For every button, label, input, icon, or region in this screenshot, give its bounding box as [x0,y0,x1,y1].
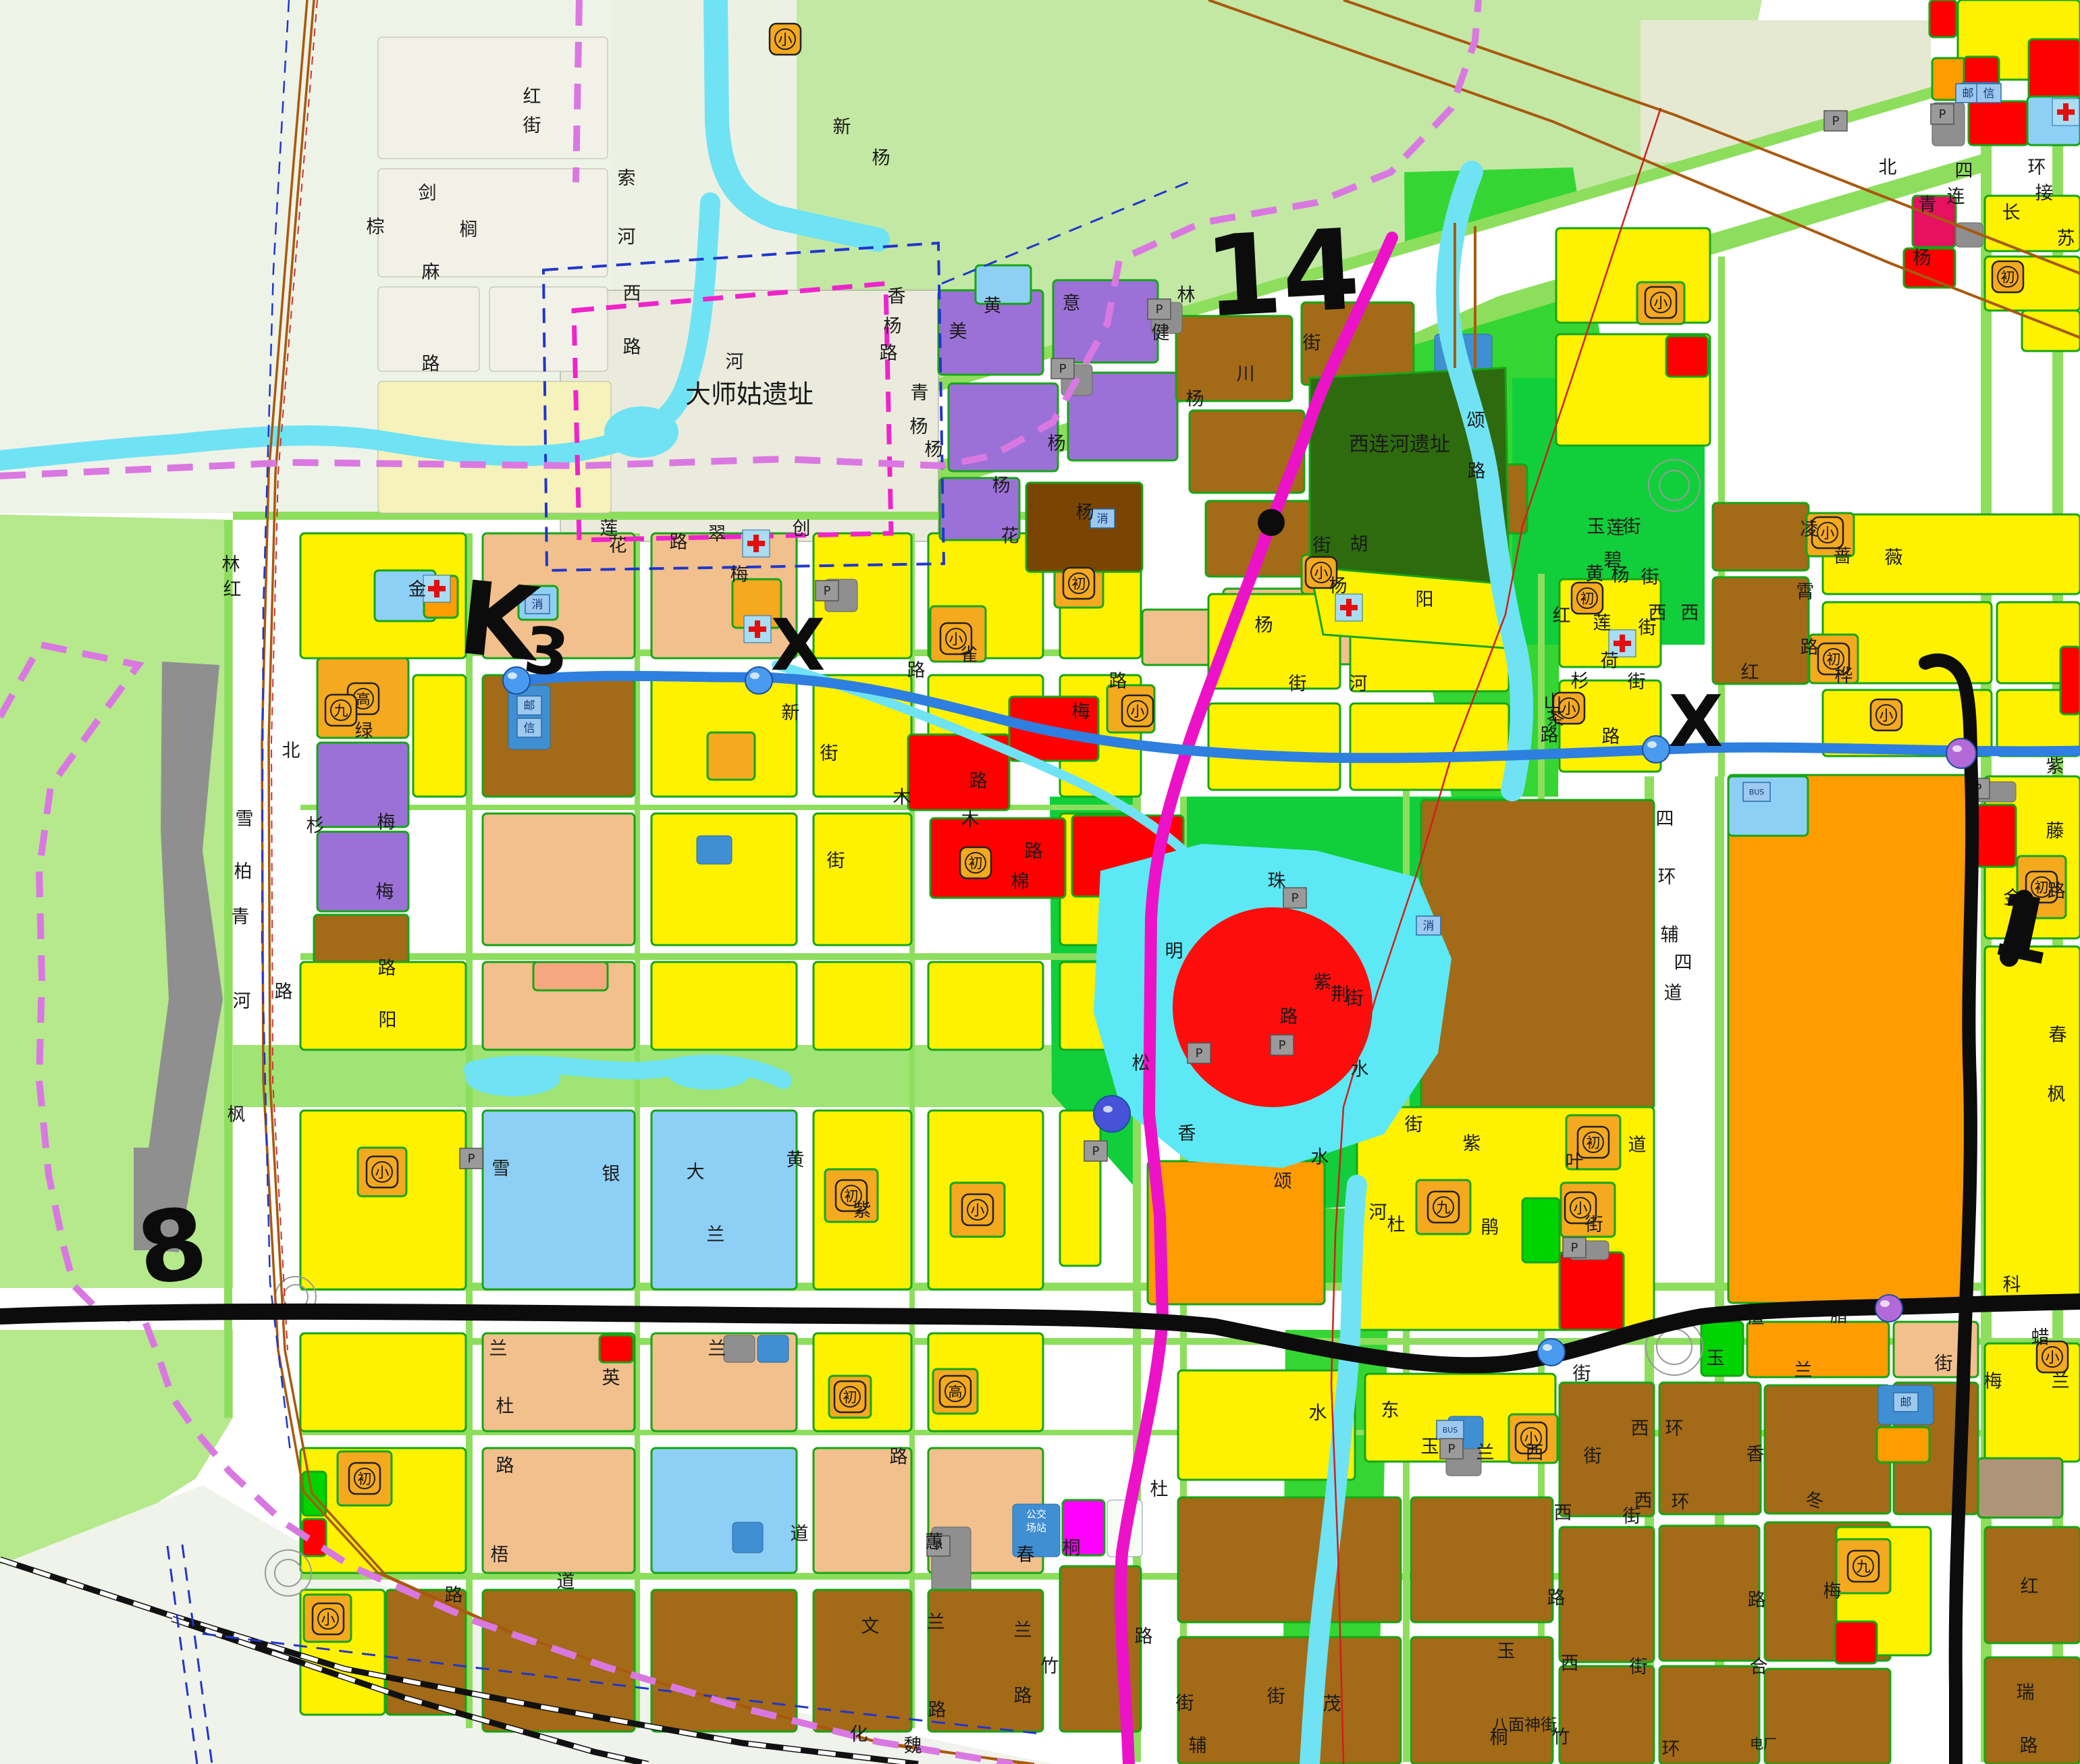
parcel [489,287,608,371]
street-label: 道 [1664,983,1682,1004]
street-label: 河 [1350,674,1368,695]
parking-icon-char: P [1832,114,1840,128]
street-label: 兰 [708,1339,726,1360]
street-label: 环 [1658,867,1676,888]
street-label: 东 [1381,1400,1399,1421]
parcel [928,962,1043,1050]
street-label: 西 [1526,1443,1544,1464]
street-label: 街 [1585,1214,1603,1235]
parcel [483,1111,635,1289]
street-label: 四 [1656,809,1674,830]
street-label: 街 [1641,567,1659,588]
xin-icon-char: 信 [524,722,535,735]
green-strip [300,953,1141,960]
street-label: 杨 [925,439,943,460]
street-label: 藤 [2046,821,2064,842]
street-label: 北 [1879,157,1897,178]
street-label: 明 [1165,941,1183,962]
parcel [651,1448,797,1573]
parcel [732,1522,763,1553]
parcel [508,685,550,749]
parcel [1713,577,1809,684]
street-label: 香 [1178,1123,1196,1144]
street-label: 兰 [1476,1443,1495,1464]
street-label: 辅 [1661,925,1679,946]
hand-marker-label: 3 [521,613,572,691]
street-label: 竹 [1041,1656,1059,1677]
street-label: 绿 [355,721,373,742]
street-label: 四 [1955,161,1973,182]
parcel [413,675,466,797]
street-label: 颂 [1274,1171,1292,1192]
parcel [1765,1385,1890,1514]
fire-icon-char: 消 [1423,919,1435,933]
parcel [2060,647,2080,714]
parcel [1969,101,2028,145]
parcel [300,1333,466,1431]
school-icon-char: 高 [949,1384,963,1400]
hospital-cross [434,580,439,597]
street-label: 街 [827,851,845,872]
street-label: 杨 [1329,576,1348,597]
street-label: 路 [907,660,926,681]
parcel [1411,1637,1553,1764]
street-label: 玉 [1587,516,1605,537]
parcel [1977,805,2016,867]
parcel [1747,1322,1889,1377]
transit-bead-highlight [1647,741,1657,748]
street-label: 杨 [1186,389,1204,410]
street-label: 杨 [992,475,1011,496]
street-label: 北 [282,741,300,761]
street-label: 环 [1662,1739,1680,1760]
street-label: 杜 [1387,1214,1406,1235]
street-label: 柏 [234,861,252,882]
street-label: 春 [2049,1025,2067,1046]
street-label: 莲 [1607,518,1625,539]
parcel [599,1335,633,1362]
street-label: 街 [1623,516,1641,537]
street-label: 凌 [1801,519,1819,540]
street-label: 路 [378,958,396,979]
street-label: 金 [408,579,427,600]
parcel [757,1335,789,1362]
street-label: 路 [422,354,440,375]
street-label: 木 [893,787,911,808]
school-icon-char: 小 [1821,525,1835,541]
street-label: 瑞 [2017,1682,2035,1703]
street-label: 公交 [1026,1508,1046,1520]
street-label: 兰 [927,1612,945,1633]
street-label: 梅 [730,564,749,585]
parcel [930,818,1065,898]
parcel [300,1111,466,1289]
street-label: 道 [791,1524,809,1545]
transit-bead-highlight [1103,1106,1113,1113]
street-label: 西 [1681,603,1699,624]
hospital-cross [755,620,760,638]
street-label: 杨 [884,316,902,337]
street-label: 梅 [376,882,394,903]
street-label: 香 [1746,1444,1765,1465]
street-label: 路 [1280,1007,1298,1027]
street-label: 街 [1584,1446,1602,1467]
street-label: 街 [1628,672,1646,693]
street-label: 四 [1674,953,1692,973]
street-label: 兰 [1014,1620,1032,1641]
transit-bead [1946,739,1976,768]
parcel [1026,483,1142,572]
school-icon-char: 初 [358,1471,372,1487]
street-label: 路 [670,532,688,553]
street-label: 路 [445,1585,463,1606]
street-label: 路 [880,343,898,364]
stadium-red-circle [1173,907,1372,1107]
street-label: 创 [793,518,811,539]
school-icon-char: 九 [334,703,348,719]
transit-bead [1538,1339,1565,1366]
street-label: 榈 [460,219,478,240]
street-label: 杨 [1255,615,1273,636]
street-label: 梅 [1984,1371,2002,1392]
parking-icon-char: P [1196,1046,1203,1061]
parcel [1208,703,1340,790]
parking-icon-char: P [1939,107,1946,122]
street-label: 雪 [236,809,254,830]
street-label: 意 [1063,293,1081,314]
street-label: 街 [1630,1657,1648,1678]
green-strip [300,805,1141,810]
street-label: 街 [1573,1364,1591,1385]
street-label: 路 [1801,637,1819,658]
school-icon-char: 初 [1072,576,1086,592]
parking-icon-char: P [1156,302,1163,317]
planning-map: 小小小小小小小小小小小小小小初初初初初初初初初初高高九九九消消消邮邮邮信信BUS… [0,0,2080,1764]
street-label: 花 [1001,526,1019,547]
parking-icon-char: P [1448,1442,1456,1456]
street-label: 街 [1405,1115,1423,1135]
parcel [1666,336,1708,377]
parking-icon-char: P [1059,362,1067,376]
street-label: 莲 [1593,613,1611,634]
street-label: 青 [1919,194,1937,215]
street-label: 蜡 [2031,1327,2050,1348]
street-label: 红 [523,86,541,107]
street-label: 道 [557,1572,575,1593]
street-label: 紫 [1463,1133,1481,1154]
street-label: 荷 [1601,651,1619,672]
street-label: 黄 [786,1150,805,1171]
street-label: 西 [623,284,641,304]
hospital-cross [2063,103,2069,121]
street-label: 杜 [496,1396,514,1417]
street-label: 路 [275,982,293,1003]
street-label: 梅 [377,812,396,833]
parcel [1522,1198,1559,1262]
street-label: 霄 [1796,582,1815,603]
street-label: 路 [1602,726,1620,747]
street-label: 蕙 [926,1532,944,1553]
parcel [814,813,911,945]
street-label: 化 [850,1724,868,1745]
parking-icon-char: P [468,1152,475,1166]
parcel [1823,514,2080,594]
parking-icon-char: P [824,584,831,598]
street-label: 颂 [1467,410,1485,431]
street-label: 青 [232,907,250,928]
parking-icon-char: P [1291,891,1299,905]
parcel [651,1111,797,1289]
street-label: 路 [928,1700,946,1721]
school-icon-char: 小 [1131,703,1145,720]
street-label: 玉 [1707,1348,1725,1369]
street-label: 雪 [492,1158,510,1179]
street-label: 杉 [1571,671,1589,692]
street-label: 棕 [367,217,385,238]
street-label: 玉 [1497,1641,1516,1662]
green-strip [224,520,232,1418]
parcel [1929,0,1956,37]
street-label: 苏 [2057,228,2075,249]
street-label: 桐 [1063,1538,1081,1559]
school-icon-char: 小 [321,1611,336,1628]
parcel [483,813,635,945]
street-label: 街 [1313,535,1331,556]
street-label: 街 [1289,674,1307,695]
parcel [1556,228,1710,323]
street-label: 杨 [1913,248,1931,269]
parking-icon-char: P [1279,1038,1286,1052]
parcel [1148,1161,1325,1304]
street-label: 八面神街 [1492,1715,1557,1734]
school-icon-char: 初 [1580,591,1595,607]
street-label: 红 [1741,662,1759,683]
parcel [1835,1622,1877,1663]
street-label: 环 [1665,1418,1684,1439]
parcel [1985,946,2080,1303]
pond [604,406,678,458]
street-label: 鹃 [1481,1217,1499,1238]
street-label: 杨 [1076,502,1094,523]
street-label: 水 [1309,1403,1327,1424]
street-label: 桦 [1835,666,1853,687]
street-label: 玉 [1421,1437,1439,1458]
parcel [724,1335,755,1362]
street-label: 叶 [1566,1152,1584,1173]
street-label: 新 [833,117,851,138]
parcel [708,732,755,780]
street-label: 蔷 [1834,546,1852,567]
parcel [651,1590,797,1732]
street-label: 林 [222,554,240,575]
parcel [1350,703,1509,790]
parcel [651,962,797,1050]
street-label: 阳 [379,1010,397,1031]
parcel [1178,1637,1401,1764]
street-label: 环 [2028,157,2046,178]
street-label: 科 [2003,1275,2021,1295]
street-label: 川 [1237,364,1255,385]
parcel [1142,610,1218,665]
parcel [1559,1666,1654,1764]
street-label: 街 [1267,1686,1285,1707]
street-label: 红 [2021,1576,2039,1597]
parcel [483,675,635,797]
street-label: 路 [623,337,641,358]
xin-icon-char: 信 [1983,87,1995,101]
street-label: 兰 [489,1339,508,1360]
map-canvas: 小小小小小小小小小小小小小小初初初初初初初初初初高高九九九消消消邮邮邮信信BUS… [0,0,2080,1764]
street-label: 新 [782,703,800,724]
parcel [1421,800,1654,1109]
hand-marker-label: X [771,604,826,687]
school-icon-char: 九 [1437,1200,1451,1216]
post-icon-char: 邮 [1900,1396,1912,1410]
street-label: 黄 [984,296,1002,317]
street-label: 街 [1345,988,1364,1009]
street-label: 雀 [960,645,978,666]
parcel [1728,775,1971,1303]
street-label: 红 [1553,606,1571,626]
transit-bead [1094,1096,1130,1132]
parcel [1765,1669,1890,1764]
parking-icon-char: P [1571,1241,1578,1255]
street-label: 杉 [306,816,325,836]
street-label: 麻 [422,262,440,283]
transit-bead [1875,1295,1902,1322]
street-label: 健 [1152,323,1170,344]
school-icon-char: 九 [1857,1559,1871,1575]
transit-bead-highlight [1952,745,1962,752]
street-label: 杨 [872,148,890,169]
street-label: 枫 [2048,1084,2066,1105]
hospital-cross [1620,635,1625,652]
street-label: 春 [1017,1545,1035,1566]
street-label: 路 [1025,841,1043,862]
street-label: 胡 [1350,534,1368,555]
street-label: 梅 [1072,701,1090,722]
parking-icon-char: P [1092,1144,1100,1158]
street-label: 茂 [1323,1694,1341,1715]
parcel [1178,1370,1355,1480]
parcel [651,813,797,945]
parcel [1411,1497,1553,1622]
street-label: 路 [1748,1590,1766,1611]
school-icon-char: 初 [2001,269,2015,286]
parcel [1877,1427,1929,1462]
street-label: 西 [1649,603,1667,624]
street-label: 街 [820,743,838,764]
street-label: 英 [602,1368,620,1389]
street-label: 西 [1631,1418,1649,1439]
parcel [697,836,732,864]
school-icon-char: 小 [1654,295,1668,311]
school-icon-char: 小 [1314,565,1329,581]
street-label: 杜 [1150,1479,1169,1500]
parcel [317,832,408,911]
street-label: 棉 [1011,872,1030,892]
street-label: 河 [618,227,636,248]
fire-icon-char: 消 [1097,512,1109,526]
street-label: 黄 [1586,564,1604,585]
school-icon-char: 小 [971,1202,985,1219]
transit-bead-highlight [1880,1300,1890,1307]
bus-icon-char: BUS [1749,788,1765,797]
street-label: 魏 [904,1736,922,1757]
school-icon-char: 小 [2046,1349,2060,1366]
street-label: 合 [1750,1657,1768,1678]
street-label: 枫 [228,1104,246,1125]
transit-bead-highlight [1543,1344,1552,1351]
hospital-cross [1346,599,1352,616]
pond [668,1060,749,1090]
street-label: 珠 [1268,871,1286,892]
parcel [378,37,608,159]
street-label: 街 [523,115,541,136]
street-label: 辅 [1189,1736,1207,1757]
street-label: 路 [1135,1626,1153,1647]
parcel [1178,1497,1401,1622]
street-label: 薇 [1885,547,1903,568]
street-label: 阳 [1416,589,1434,610]
street-label: 剑 [419,183,437,204]
street-label: 大 [687,1162,705,1183]
street-label: 翠 [708,524,726,545]
street-label: 杨 [910,417,928,437]
school-icon-char: 小 [1879,707,1894,724]
street-label: 街 [1935,1354,1953,1374]
pond [466,1061,560,1096]
street-label: 梧 [491,1545,509,1566]
street-label: 水 [1311,1147,1329,1168]
street-label: 香 [888,286,906,307]
street-label: 美 [949,321,967,342]
street-label: 林 [1177,285,1196,306]
street-label: 路 [1541,725,1559,746]
street-label: 索 [618,168,636,189]
street-label: 松 [1132,1053,1150,1074]
school-icon-char: 初 [1586,1135,1601,1151]
street-label: 连 [1947,186,1965,207]
street-label: 梅 [1823,1581,1842,1602]
street-label: 环 [1672,1492,1690,1513]
hand-marker-label: 14 [1201,205,1362,342]
school-icon-char: 初 [843,1389,857,1406]
parcel [1713,503,1809,570]
parcel [814,962,911,1050]
street-label: 兰 [707,1225,725,1246]
transit-bead [1643,736,1670,763]
street-label: 路 [1468,461,1486,482]
street-label: 街 [1623,1506,1641,1527]
street-label: 接 [2035,183,2054,204]
parcel [533,962,608,990]
parcel [1659,1526,1759,1661]
street-label: 长 [2002,203,2021,223]
street-label: 路 [890,1447,908,1468]
school-icon-char: 初 [969,855,983,872]
post-icon-char: 邮 [1963,87,1974,101]
street-label: 河 [726,352,744,373]
parcel [1978,1458,2062,1518]
street-label: 木 [961,809,980,830]
street-label: 路 [2020,1736,2038,1757]
street-label: 河 [1369,1202,1387,1223]
street-label: 路 [496,1455,514,1476]
street-label: 路 [969,771,988,792]
street-label: 杨 [1611,565,1630,586]
street-label: 青 [911,383,929,404]
